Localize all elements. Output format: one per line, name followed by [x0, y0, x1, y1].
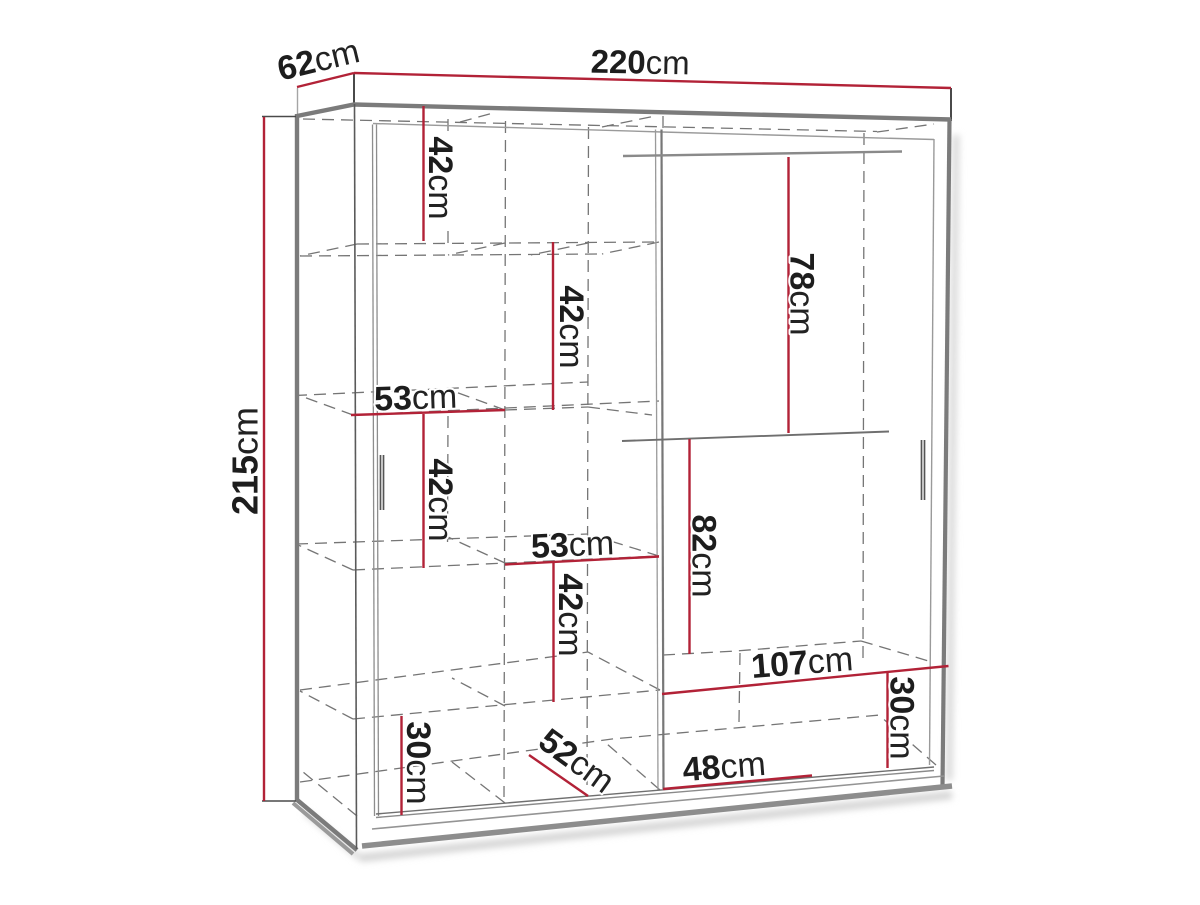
svg-text:42cm: 42cm: [552, 285, 590, 368]
svg-text:53cm: 53cm: [530, 524, 615, 566]
svg-text:220cm: 220cm: [590, 43, 690, 82]
svg-text:53cm: 53cm: [373, 378, 457, 419]
svg-text:42cm: 42cm: [421, 458, 459, 541]
svg-text:42cm: 42cm: [551, 573, 589, 656]
svg-text:82cm: 82cm: [685, 514, 723, 597]
svg-text:42cm: 42cm: [421, 136, 459, 219]
svg-text:78cm: 78cm: [783, 252, 821, 335]
svg-text:107cm: 107cm: [750, 640, 855, 686]
svg-text:48cm: 48cm: [681, 745, 767, 789]
svg-text:30cm: 30cm: [399, 721, 437, 804]
svg-text:215cm: 215cm: [225, 407, 266, 515]
svg-text:30cm: 30cm: [883, 676, 921, 759]
